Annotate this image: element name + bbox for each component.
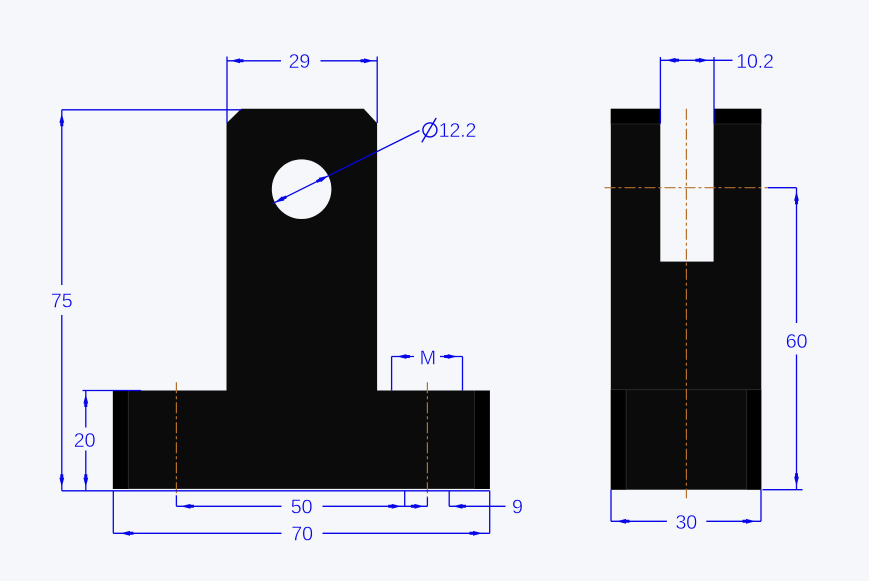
svg-text:30: 30 bbox=[675, 512, 697, 534]
svg-text:75: 75 bbox=[51, 291, 73, 313]
svg-text:70: 70 bbox=[291, 524, 313, 546]
svg-text:10.2: 10.2 bbox=[736, 51, 774, 73]
svg-text:12.2: 12.2 bbox=[439, 120, 477, 142]
svg-text:M: M bbox=[420, 347, 436, 369]
svg-text:9: 9 bbox=[512, 497, 523, 519]
svg-text:60: 60 bbox=[786, 331, 808, 353]
svg-text:29: 29 bbox=[288, 51, 310, 73]
svg-text:50: 50 bbox=[291, 497, 313, 519]
svg-text:20: 20 bbox=[74, 430, 96, 452]
